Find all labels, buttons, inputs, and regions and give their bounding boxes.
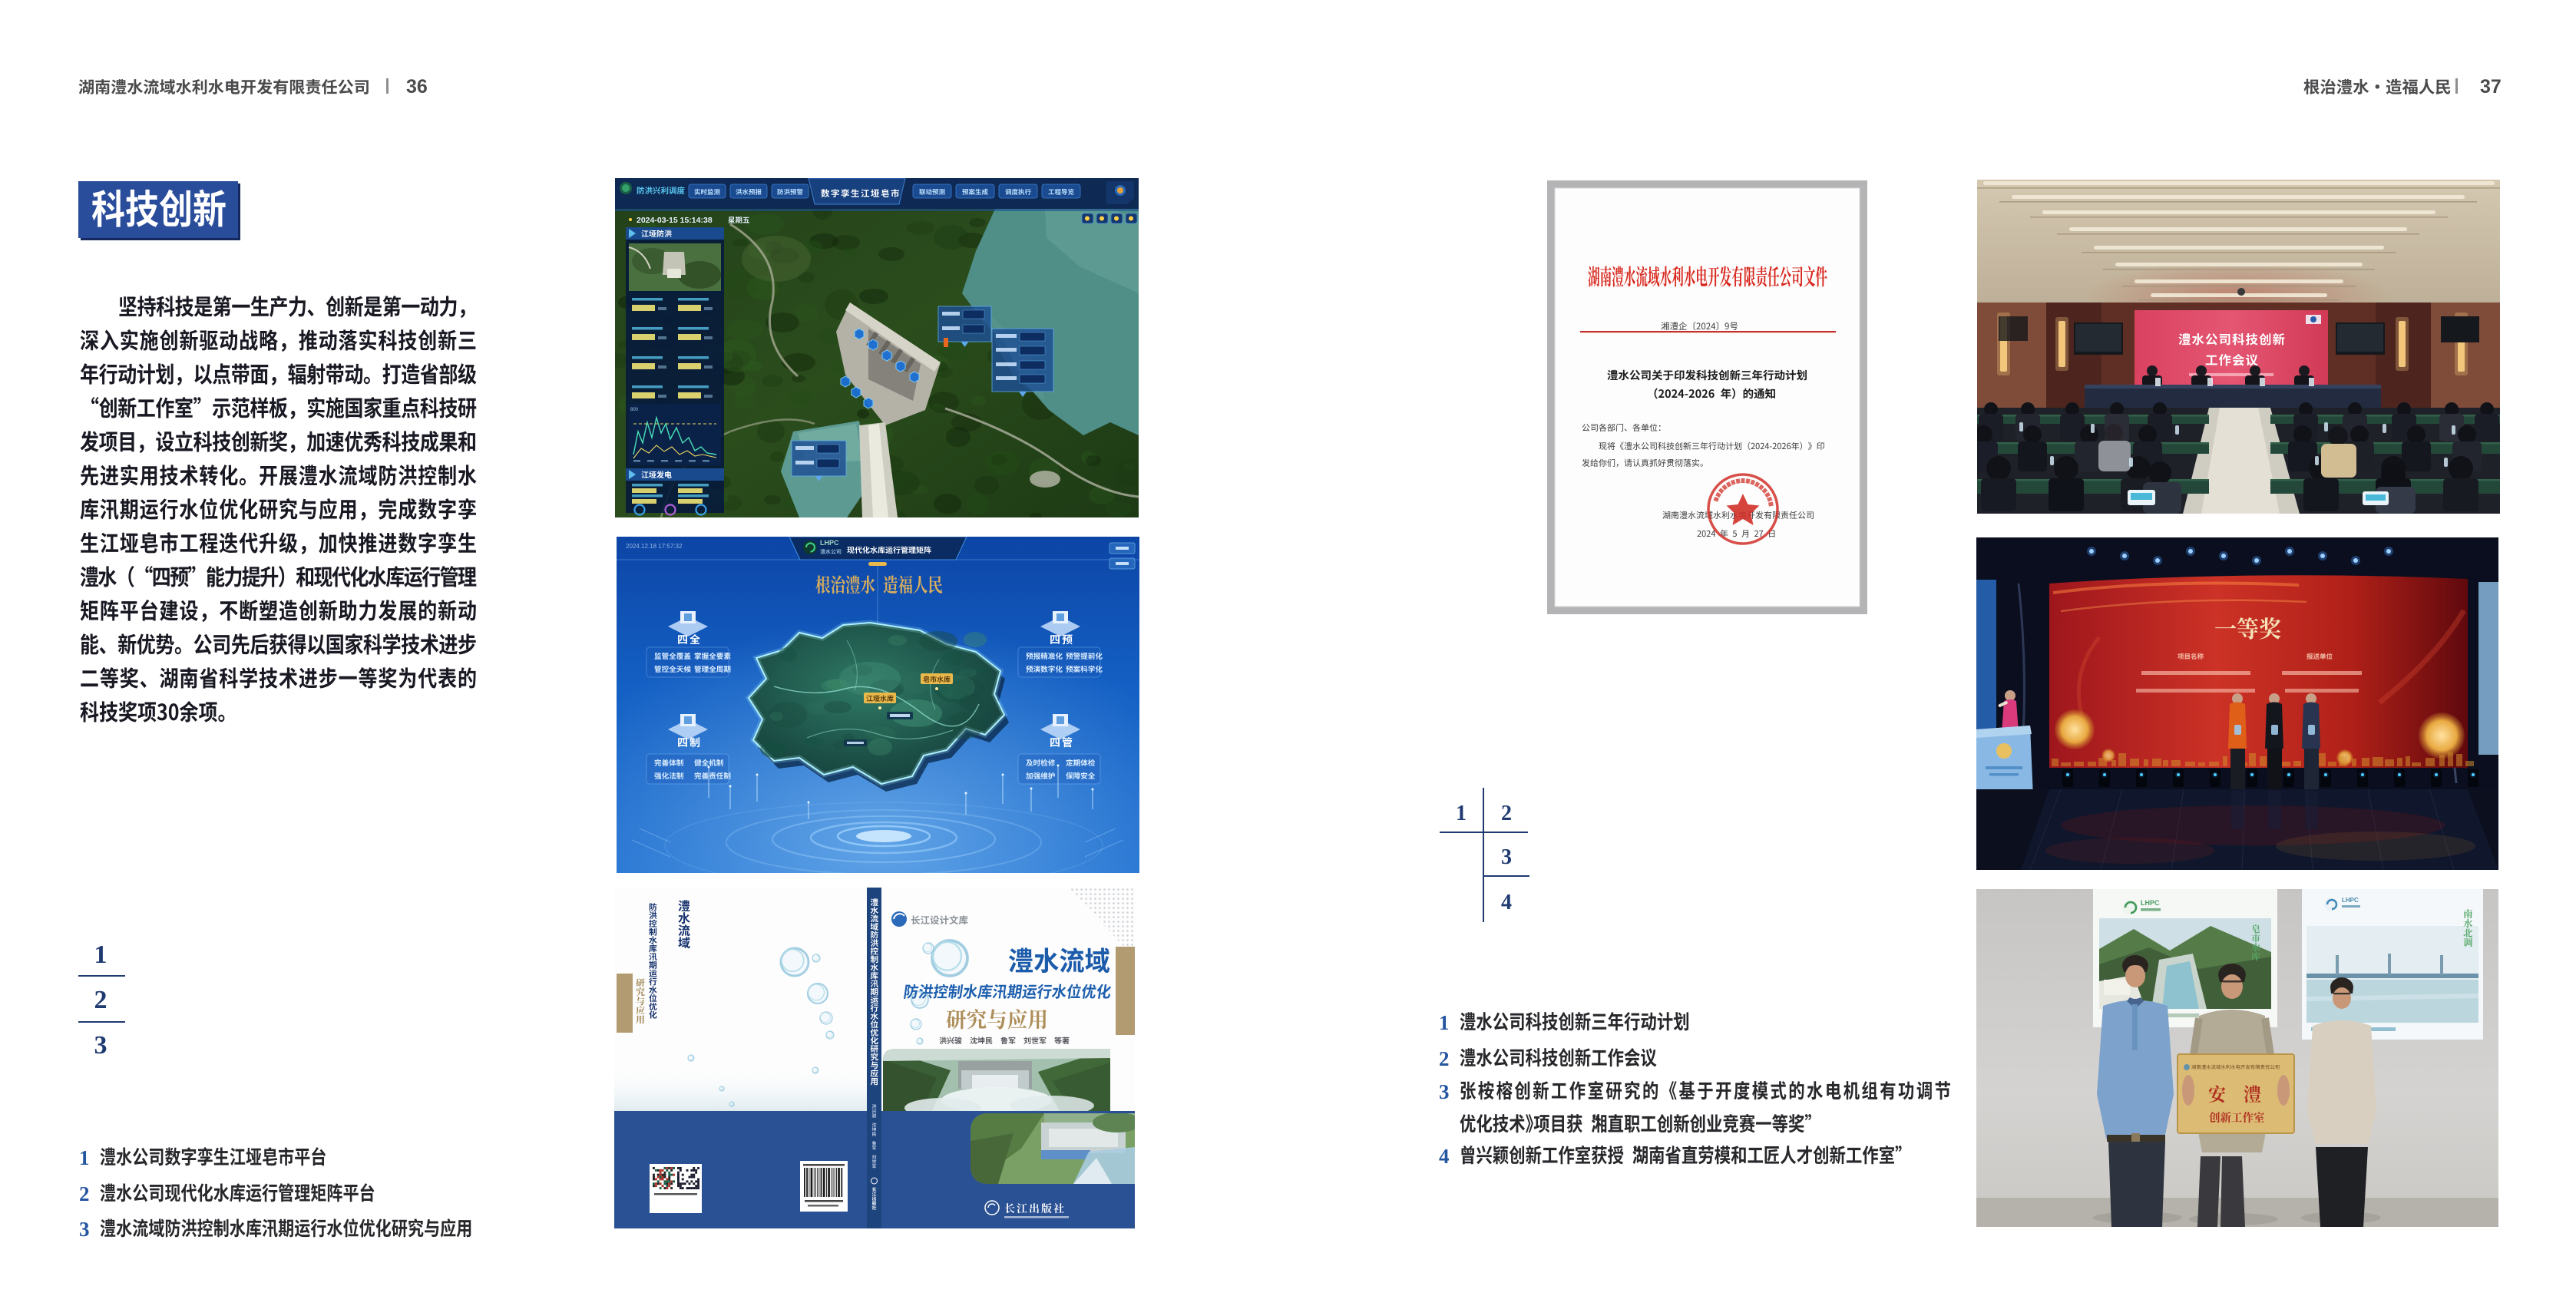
- svg-text:3: 3: [94, 1031, 107, 1060]
- svg-text:LHPC: LHPC: [2141, 899, 2160, 907]
- svg-text:3: 3: [79, 1218, 90, 1241]
- svg-text:37: 37: [2480, 76, 2502, 98]
- svg-text:LHPC: LHPC: [820, 539, 839, 547]
- svg-text:2: 2: [94, 986, 107, 1014]
- svg-text:1: 1: [94, 941, 107, 969]
- svg-text:1: 1: [1456, 802, 1467, 825]
- svg-text:3: 3: [1439, 1080, 1450, 1103]
- svg-text:4: 4: [1439, 1145, 1450, 1168]
- svg-text:1: 1: [1439, 1011, 1450, 1034]
- svg-text:2024-03-15 15:14:38: 2024-03-15 15:14:38: [637, 216, 713, 225]
- svg-text:3: 3: [1501, 845, 1512, 869]
- svg-text:LHPC: LHPC: [2342, 897, 2359, 904]
- svg-text:4: 4: [1501, 891, 1512, 914]
- svg-text:2: 2: [1439, 1047, 1450, 1070]
- svg-text:2: 2: [1501, 802, 1512, 825]
- svg-text:2: 2: [79, 1182, 90, 1205]
- svg-text:36: 36: [406, 76, 428, 98]
- svg-text:800: 800: [630, 408, 639, 412]
- svg-text:2024.12.18 17:57:32: 2024.12.18 17:57:32: [626, 543, 683, 550]
- svg-text:1: 1: [79, 1146, 90, 1169]
